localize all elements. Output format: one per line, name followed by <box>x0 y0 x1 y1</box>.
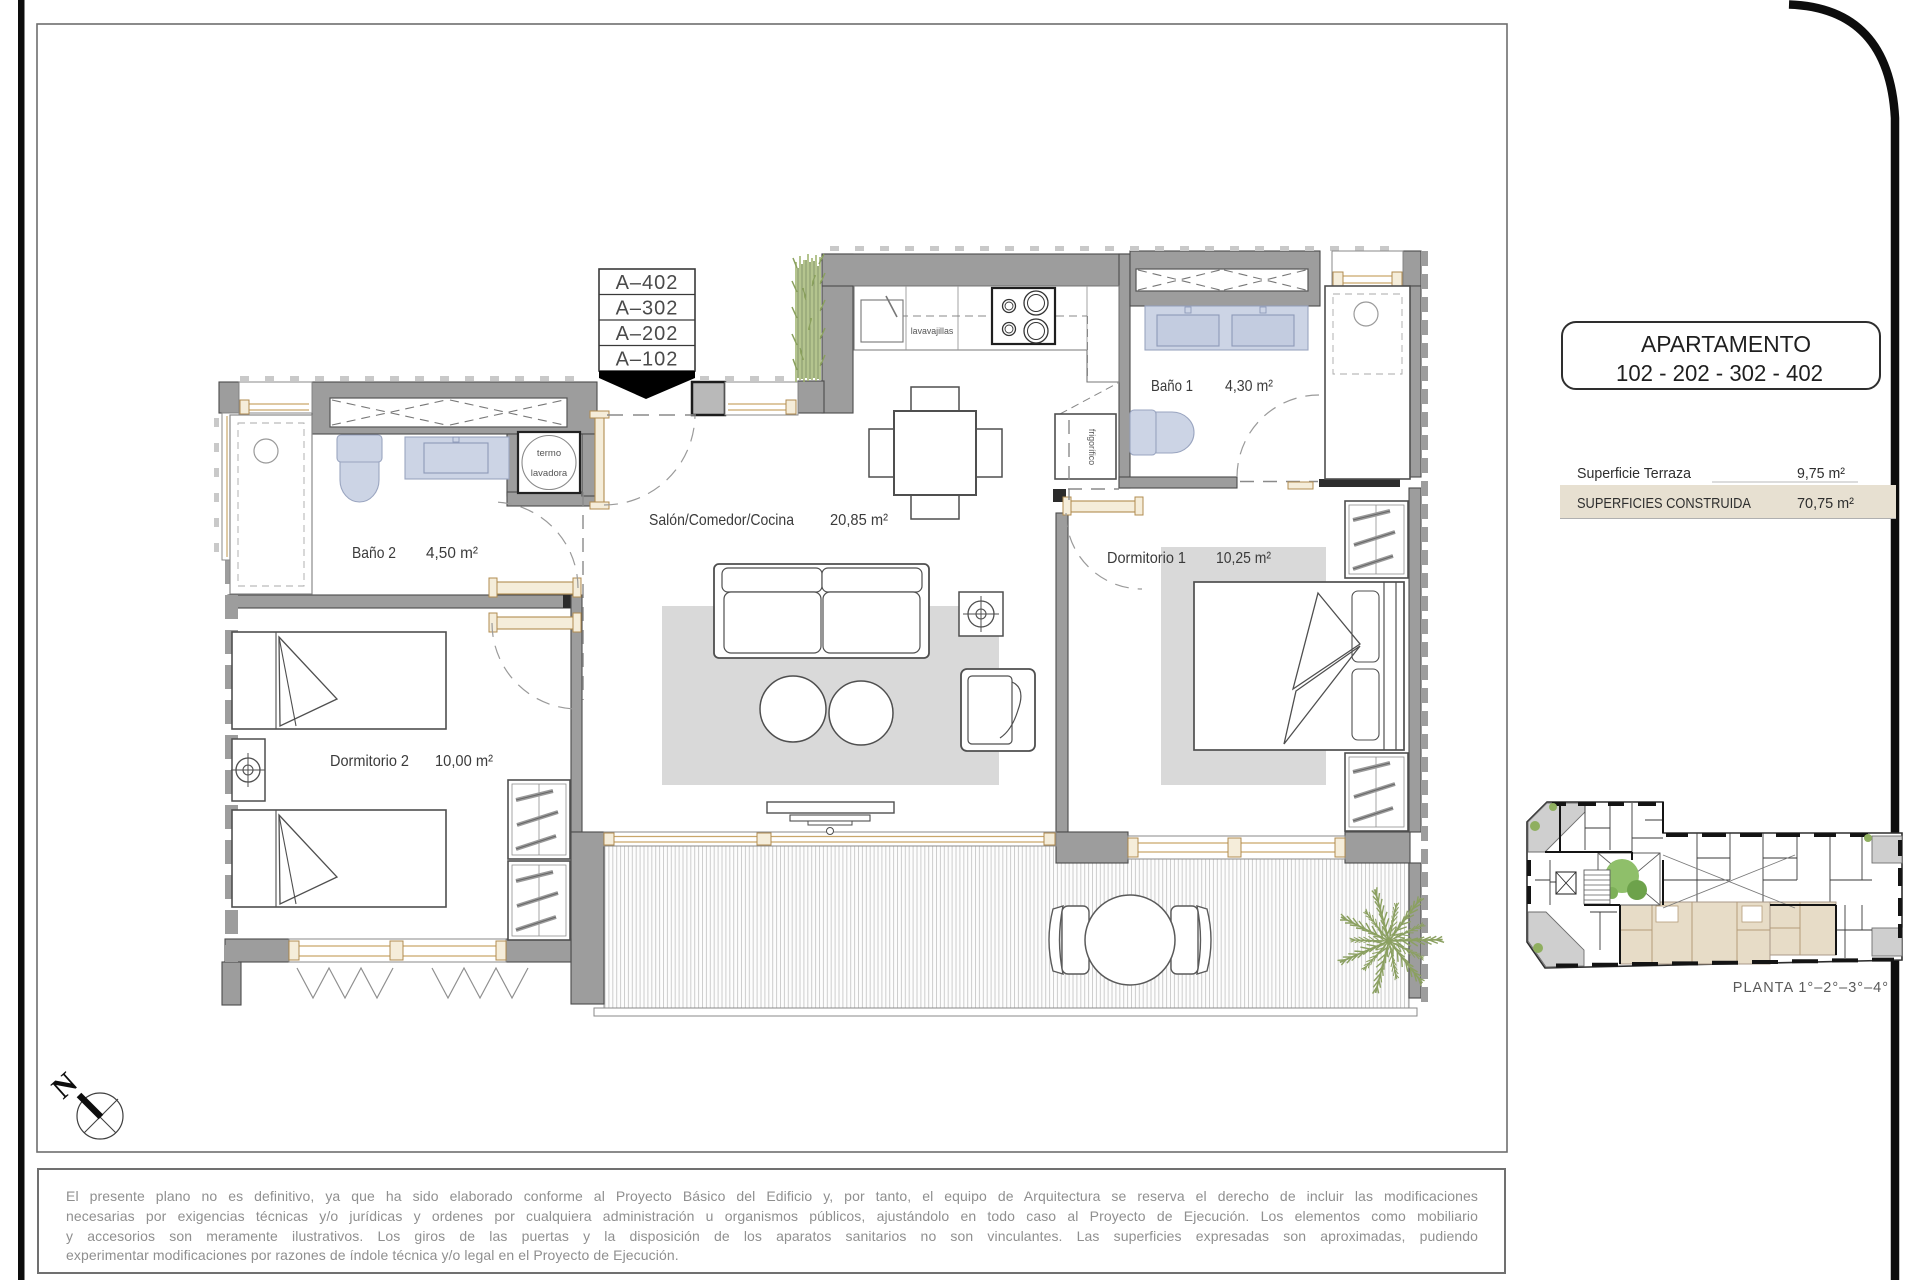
svg-text:Baño 2: Baño 2 <box>352 545 396 562</box>
svg-text:Baño 1: Baño 1 <box>1151 378 1193 395</box>
svg-text:PLANTA 1°–2°–3°–4°: PLANTA 1°–2°–3°–4° <box>1733 980 1889 996</box>
svg-text:Dormitorio 2: Dormitorio 2 <box>330 753 409 770</box>
svg-text:102 - 202 - 302 - 402: 102 - 202 - 302 - 402 <box>1616 360 1823 386</box>
svg-text:N: N <box>46 1066 84 1105</box>
svg-text:Salón/Comedor/Cocina: Salón/Comedor/Cocina <box>649 512 794 529</box>
svg-text:APARTAMENTO: APARTAMENTO <box>1641 331 1811 357</box>
svg-text:frigorífico: frigorífico <box>1087 429 1097 465</box>
svg-text:20,85 m²: 20,85 m² <box>830 512 889 529</box>
svg-text:A–402: A–402 <box>616 272 679 294</box>
svg-text:10,25 m²: 10,25 m² <box>1216 550 1272 567</box>
svg-text:70,75 m²: 70,75 m² <box>1797 495 1854 512</box>
svg-text:lavadora: lavadora <box>531 468 568 479</box>
svg-text:4,30 m²: 4,30 m² <box>1225 378 1274 395</box>
svg-text:4,50 m²: 4,50 m² <box>426 545 479 562</box>
svg-text:10,00 m²: 10,00 m² <box>435 753 494 770</box>
svg-text:A–302: A–302 <box>616 298 679 320</box>
svg-text:lavavajillas: lavavajillas <box>911 326 954 336</box>
svg-text:A–102: A–102 <box>616 349 679 371</box>
svg-text:Superficie Terraza: Superficie Terraza <box>1577 465 1692 482</box>
svg-text:Dormitorio 1: Dormitorio 1 <box>1107 550 1186 567</box>
svg-text:SUPERFICIES CONSTRUIDA: SUPERFICIES CONSTRUIDA <box>1577 495 1751 512</box>
svg-text:termo: termo <box>537 448 561 459</box>
svg-text:A–202: A–202 <box>616 323 679 345</box>
svg-text:9,75 m²: 9,75 m² <box>1797 465 1845 482</box>
